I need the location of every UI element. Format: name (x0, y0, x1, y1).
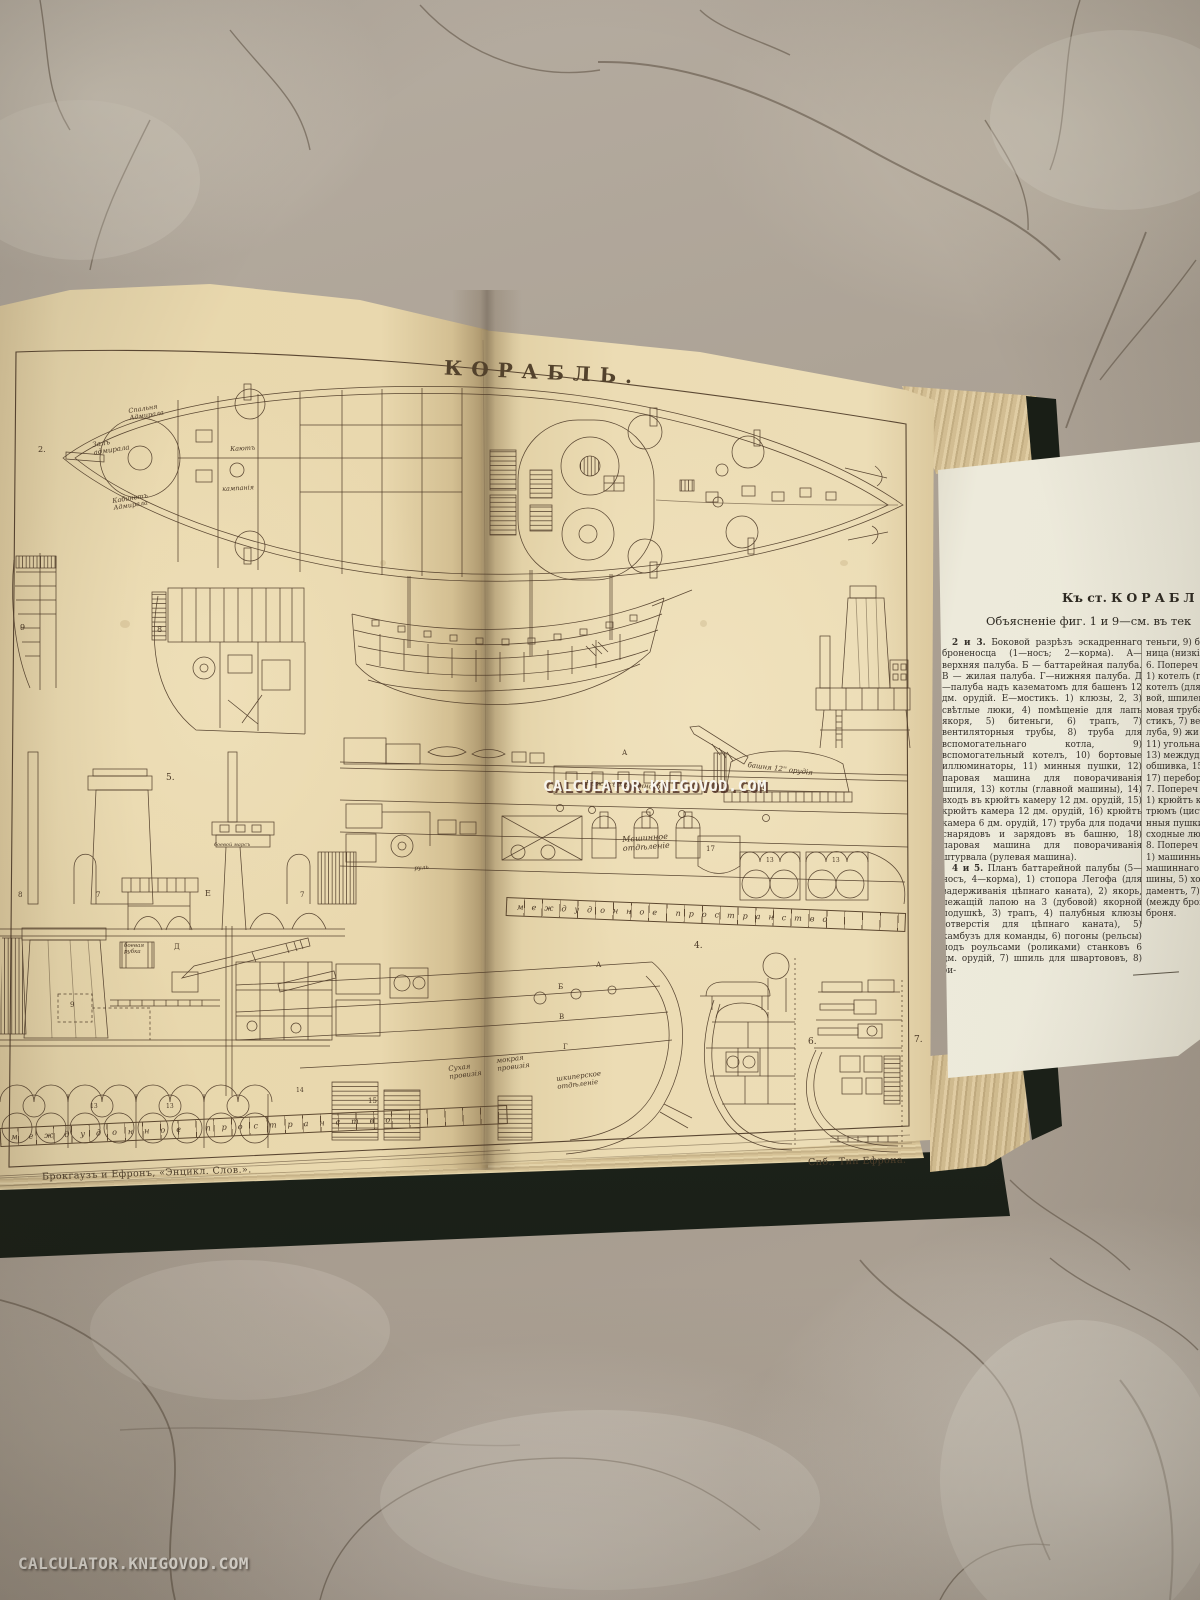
photo-of-open-book: КОРАБЛЬ. Брокгаузъ и Ефронъ, «Энцикл. Сл… (0, 0, 1200, 1600)
foxing-spot (700, 620, 707, 627)
book-gutter (452, 290, 522, 1170)
leaf-column-1: 2 и 3. Боковой разрѣзъ эскадреннаго брон… (942, 638, 1142, 977)
explanation-leaf: Къ ст.КОРАБЛ Объясненіе фиг. 1 и 9—см. в… (930, 430, 1200, 1090)
leaf-column-2-line: 17) переборка (1146, 774, 1200, 785)
foxing-spot (840, 560, 848, 566)
leaf-column-2: теньги, 9) бортница (низкіе ш6. Попереч1… (1146, 638, 1200, 920)
leaf-column-2-line: луба, 9) жи (1146, 728, 1200, 739)
left-plate-page (0, 282, 488, 1182)
leaf-column-2-line: 1) котелъ (глав (1146, 672, 1200, 683)
leaf-heading-prefix: Къ ст. (1062, 590, 1107, 605)
leaf-column-2-line: ница (низкіе ш (1146, 649, 1200, 660)
foxing-spot (380, 560, 386, 566)
leaf-column-2-line: броня. (1146, 909, 1200, 920)
leaf-column-2-line: 11) угольная (1146, 740, 1200, 751)
right-plate-page (482, 322, 934, 1172)
leaf-column-2-line: 1) крюйтъ ка (1146, 796, 1200, 807)
watermark-center: CALCULATOR.KNIGOVOD.COM (543, 777, 767, 795)
leaf-column-2-line: стикъ, 7) верх (1146, 717, 1200, 728)
leaf-heading-word: КОРАБЛ (1111, 590, 1199, 605)
leaf-column-2-line: машиннаго л (1146, 864, 1200, 875)
leaf-column-2-line: 13) междудон (1146, 751, 1200, 762)
leaf-column-2-line: котелъ (для вс (1146, 683, 1200, 694)
leaf-column-2-line: теньги, 9) борт (1146, 638, 1200, 649)
leaf-column-2-line: шины, 5) хо (1146, 875, 1200, 886)
leaf-heading: Къ ст.КОРАБЛ (1062, 590, 1199, 605)
leaf-column-2-line: обшивка, 15) (1146, 762, 1200, 773)
leaf-column-2-line: (между брон (1146, 898, 1200, 909)
column-rule (1141, 640, 1142, 924)
leaf-column-2-line: 6. Попереч (1146, 661, 1200, 672)
leaf-column-2-line: сходные люк (1146, 830, 1200, 841)
leaf-column-2-line: даментъ, 7) (1146, 887, 1200, 898)
leaf-column-2-line: вой, шпилевой (1146, 694, 1200, 705)
leaf-column-2-line: трюмъ (цисте (1146, 807, 1200, 818)
leaf-subheading: Объясненіе фиг. 1 и 9—см. въ тек (986, 614, 1191, 628)
watermark-bottom-left: CALCULATOR.KNIGOVOD.COM (18, 1554, 249, 1573)
leaf-paragraph: 2 и 3. Боковой разрѣзъ эскадреннаго брон… (942, 638, 1142, 864)
leaf-paragraph: 4 и 5. Планъ баттарейной палубы (5—носъ,… (942, 864, 1142, 977)
leaf-column-2-line: 8. Попереч (1146, 841, 1200, 852)
foxing-spot (120, 620, 130, 628)
leaf-column-2-line: 1) машинный (1146, 853, 1200, 864)
leaf-column-2-line: мовая труба, (1146, 706, 1200, 717)
leaf-column-2-line: нныя пушки, (1146, 819, 1200, 830)
leaf-column-2-line: 7. Попереч (1146, 785, 1200, 796)
